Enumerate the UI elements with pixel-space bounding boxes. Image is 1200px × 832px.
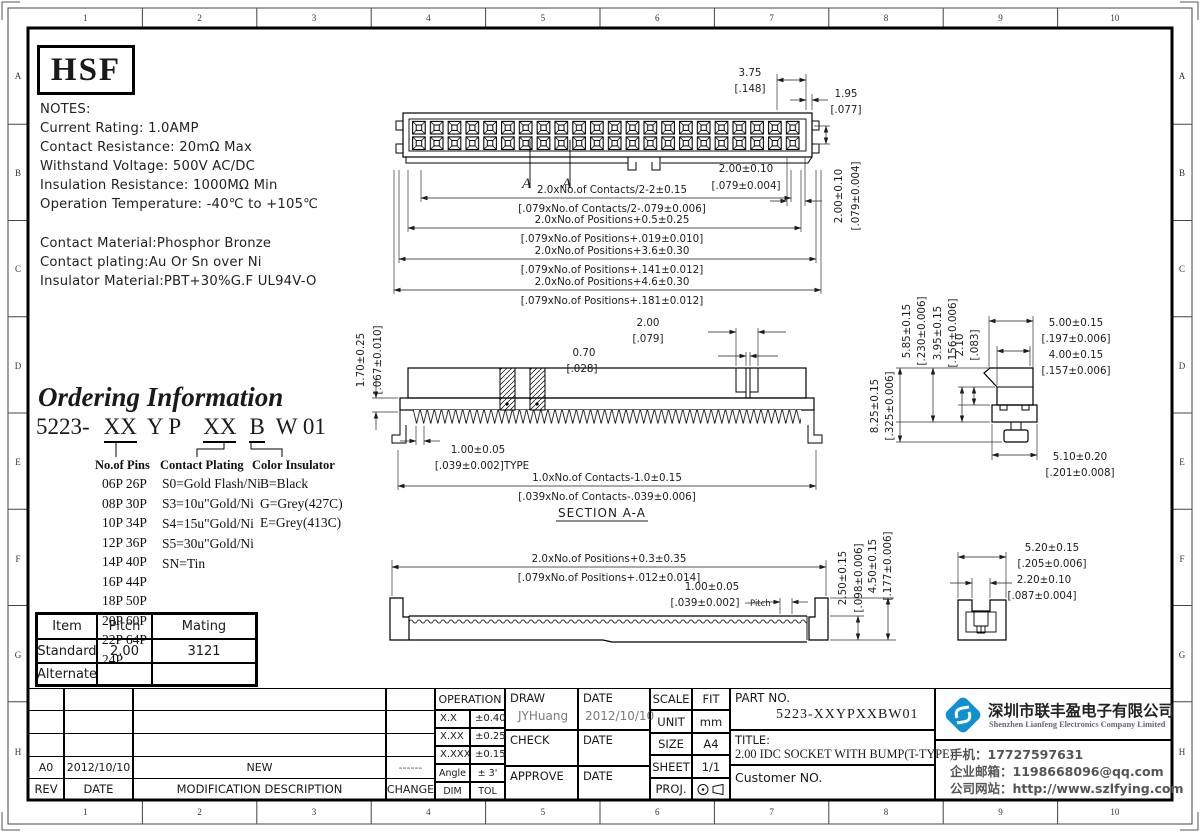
dim-5-85-in: [.230±0.006]	[916, 296, 928, 365]
ruler-row-label: G	[8, 607, 28, 704]
dim-2-00-v-in: [.079±0.004]	[850, 161, 862, 230]
dim-b-1-00: 1.00±0.05	[685, 581, 739, 593]
dim-chain-3-in: [.079xNo.of Positions+.141±0.012]	[521, 264, 703, 276]
tol-row3-label: X.XXX	[440, 749, 471, 760]
ruler-row-label: A	[8, 28, 28, 125]
dim-1-00-type-in: [.039±0.002]TYPE	[435, 460, 529, 472]
dim-chain-2: 2.0xNo.of Positions+0.5±0.25	[535, 214, 690, 226]
rev-date-value: 2012/10/10	[64, 756, 133, 778]
title-block: A0 2012/10/10 NEW ------ REV DATE MODIFI…	[28, 688, 1172, 800]
ruler-row-label: C	[8, 221, 28, 318]
pins-option: 06P 26P	[102, 474, 147, 494]
notes-material-lines: Contact Material:Phosphor BronzeContact …	[40, 234, 370, 291]
ruler-col-label: 1	[28, 8, 142, 28]
dim-8-25: 8.25±0.15	[869, 379, 881, 433]
approve-date-label: DATE	[583, 769, 613, 783]
ruler-row-label: B	[8, 125, 28, 222]
rev-desc-header: MODIFICATION DESCRIPTION	[133, 778, 386, 800]
ruler-top: 12345678910	[28, 8, 1172, 28]
size-label: SIZE	[650, 733, 692, 755]
dim-b-1-00-in: [.039±0.002]	[670, 597, 739, 609]
plating-option: S4=15u"Gold/Ni	[162, 514, 261, 534]
dim-chain-3: 2.0xNo.of Positions+3.6±0.30	[535, 245, 690, 257]
code-plating: XX	[203, 414, 236, 443]
mating-alt-mating	[152, 663, 256, 685]
section-marker-a1: A	[521, 176, 532, 192]
operation-header: OPERATION	[435, 688, 505, 710]
mating-std-item: Standard	[37, 639, 97, 663]
rev-header: REV	[28, 778, 64, 800]
dim-2-50-in: [.098±0.006]	[853, 543, 865, 612]
plating-option: S3=10u"Gold/Ni	[162, 494, 261, 514]
tol-row2-value: ±0.25	[475, 731, 506, 742]
check-date-label: DATE	[583, 733, 613, 747]
ruler-col-label: 8	[829, 8, 943, 28]
ruler-row-label: A	[1172, 28, 1192, 125]
top-view	[396, 113, 819, 188]
title-label: TITLE:	[735, 733, 770, 747]
ruler-row-label: B	[1172, 125, 1192, 222]
part-no-value: 5223-XXYPXXBW01	[776, 707, 919, 723]
note-line: Contact plating:Au Or Sn over Ni	[40, 253, 370, 272]
title-value: 2.00 IDC SOCKET WITH BUMP(T-TYPE)	[735, 747, 954, 762]
note-line: Insulator Material:PBT+30%G.F UL94V-O	[40, 272, 370, 291]
color-option: B=Black	[260, 474, 343, 494]
dim-3-75-in: [.148]	[735, 83, 766, 95]
plating-option: S5=30u"Gold/Ni	[162, 534, 261, 554]
note-line: Withstand Voltage: 500V AC/DC	[40, 157, 370, 176]
company-website: 公司网站：http://www.szlfying.com	[950, 780, 1184, 797]
pins-option: 18P 50P	[102, 591, 147, 611]
projection-symbol-icon	[696, 783, 726, 796]
ruler-col-label: 8	[829, 802, 943, 822]
code-color: B	[249, 414, 264, 443]
notes-block: NOTES: Current Rating: 1.0AMPContact Res…	[40, 100, 370, 291]
ruler-row-label: H	[8, 704, 28, 801]
mating-std-mating: 3121	[152, 639, 256, 663]
end-view-dims	[950, 552, 1012, 598]
rev-date-header: DATE	[64, 778, 133, 800]
part-no-label: PART NO.	[735, 691, 790, 705]
mating-alt-pitch	[97, 663, 152, 685]
hsf-logo-text: HSF	[51, 52, 121, 89]
draw-date-value: 2012/10/10	[585, 709, 654, 723]
sheet-label: SHEET	[650, 755, 692, 778]
dim-3-95: 3.95±0.15	[932, 306, 944, 360]
mating-table: Item Pitch Mating Standard 2.00 3121 Alt…	[35, 612, 258, 687]
pins-option: 12P 36P	[102, 533, 147, 553]
dim-5-00: 5.00±0.15	[1049, 317, 1103, 329]
note-line: Operation Temperature: -40℃ to +105℃	[40, 195, 370, 214]
dim-1-00-type: 1.00±0.05	[451, 444, 505, 456]
ruler-col-label: 3	[257, 802, 371, 822]
hsf-logo: HSF	[37, 45, 135, 95]
sheet-value: 1/1	[692, 755, 730, 778]
dim-5-10: 5.10±0.20	[1053, 451, 1107, 463]
notes-title: NOTES:	[40, 100, 370, 119]
note-line: Contact Resistance: 20mΩ Max	[40, 138, 370, 157]
dim-5-20: 5.20±0.15	[1025, 542, 1079, 554]
ordering-title: Ordering Information	[38, 382, 283, 413]
dim-4-50-in: [.177±0.006]	[882, 531, 894, 600]
ruler-left: ABCDEFGH	[8, 28, 28, 800]
ruler-col-label: 6	[600, 8, 714, 28]
ruler-row-label: F	[8, 511, 28, 608]
size-value: A4	[692, 733, 730, 755]
company-phone: 手机：17727597631	[950, 746, 1083, 763]
note-line: Current Rating: 1.0AMP	[40, 119, 370, 138]
ruler-col-label: 9	[943, 8, 1057, 28]
dim-chain-1: 2.0xNo.of Contacts/2-2±0.15	[537, 184, 687, 196]
pins-option: 14P 40P	[102, 552, 147, 572]
ruler-col-label: 6	[600, 802, 714, 822]
ruler-row-label: E	[8, 414, 28, 511]
dim-2-10-in: [.083]	[969, 330, 981, 361]
dim-1-95: 1.95	[835, 88, 858, 100]
ruler-col-label: 4	[371, 802, 485, 822]
ruler-col-label: 1	[28, 802, 142, 822]
dim-1-70-in: [.067±0.010]	[372, 325, 384, 394]
unit-label: UNIT	[650, 710, 692, 733]
notes-lines: Current Rating: 1.0AMPContact Resistance…	[40, 119, 370, 214]
ruler-col-label: 7	[714, 8, 828, 28]
ordering-code: 5223-XXY PXXBW 01	[36, 414, 326, 443]
draw-label: DRAW	[510, 691, 545, 705]
pins-option: 10P 34P	[102, 513, 147, 533]
tol-row1-label: X.X	[440, 713, 457, 724]
ruler-row-label: C	[1172, 221, 1192, 318]
dim-chain-4-in: [.079xNo.of Positions+.181±0.012]	[521, 295, 703, 307]
plating-option: S0=Gold Flash/Ni	[162, 474, 261, 494]
color-option: E=Grey(413C)	[260, 513, 343, 533]
rev-change-value: ------	[386, 756, 435, 778]
dim-4-50: 4.50±0.15	[867, 539, 879, 593]
code-mid: Y P	[147, 414, 181, 440]
section-label: SECTION A-A	[558, 506, 646, 520]
dim-b-chain: 2.0xNo.of Positions+0.3±0.35	[532, 553, 687, 565]
dim-5-85: 5.85±0.15	[901, 304, 913, 358]
dim-sec-chain-in: [.039xNo.of Contacts-.039±0.006]	[518, 491, 696, 503]
dim-4-00: 4.00±0.15	[1049, 349, 1103, 361]
mating-header-mating: Mating	[152, 614, 256, 639]
color-option: G=Grey(427C)	[260, 494, 343, 514]
ruler-col-label: 4	[371, 8, 485, 28]
check-label: CHECK	[510, 733, 550, 747]
ruler-col-label: 5	[486, 8, 600, 28]
note-line: Insulation Resistance: 1000MΩ Min	[40, 176, 370, 195]
dim-5-00-in: [.197±0.006]	[1041, 333, 1110, 345]
mating-std-pitch: 2.00	[97, 639, 152, 663]
dim-3-75: 3.75	[739, 67, 762, 79]
section-view	[392, 368, 822, 443]
scale-value: FIT	[692, 688, 730, 710]
customer-no-label: Customer NO.	[735, 770, 822, 785]
pins-option: 08P 30P	[102, 494, 147, 514]
dim-sec-chain: 1.0xNo.of Contacts-1.0±0.15	[532, 472, 682, 484]
code-prefix: 5223-	[36, 414, 90, 440]
dim-chain-2-in: [.079xNo.of Positions+.019±0.010]	[521, 233, 703, 245]
rev-desc-value: NEW	[133, 756, 386, 778]
plating-list: S0=Gold Flash/NiS3=10u"Gold/NiS4=15u"Gol…	[162, 474, 261, 574]
color-header: Color Insulator	[252, 458, 335, 473]
plating-option: SN=Tin	[162, 554, 261, 574]
ruler-row-label: D	[1172, 318, 1192, 415]
dim-2-00-h: 2.00±0.10	[719, 163, 773, 175]
tol-tol-label: TOL	[470, 782, 505, 800]
code-suffix: W 01	[276, 414, 326, 440]
ruler-row-label: F	[1172, 511, 1192, 608]
dim-1-70: 1.70±0.25	[355, 333, 367, 387]
dim-2-20: 2.20±0.10	[1017, 574, 1071, 586]
dim-4-00-in: [.157±0.006]	[1041, 365, 1110, 377]
tol-row3-value: ±0.15	[475, 749, 506, 760]
dim-b-chain-in: [.079xNo.of Positions+.012±0.014]	[518, 572, 700, 584]
dim-2-00-h-in: [.079±0.004]	[711, 180, 780, 192]
pins-header: No.of Pins	[95, 458, 150, 473]
rev-change-header: CHANGE	[386, 778, 435, 800]
dim-5-20-in: [.205±0.006]	[1017, 558, 1086, 570]
tol-angle-label: Angle	[435, 764, 470, 782]
code-pins: XX	[104, 414, 137, 443]
ruler-col-label: 10	[1058, 8, 1172, 28]
ruler-bottom: 12345678910	[28, 802, 1172, 822]
proj-label: PROJ.	[650, 778, 692, 800]
ruler-row-label: G	[1172, 607, 1192, 704]
ruler-col-label: 10	[1058, 802, 1172, 822]
tol-row2-label: X.XX	[440, 731, 464, 742]
ruler-col-label: 2	[142, 8, 256, 28]
ruler-col-label: 3	[257, 8, 371, 28]
ruler-right: ABCDEFGH	[1172, 28, 1192, 800]
dim-2-00-slot-in: [.079]	[633, 333, 664, 345]
draw-date-label: DATE	[583, 691, 613, 705]
color-list: B=BlackG=Grey(427C)E=Grey(413C)	[260, 474, 343, 533]
ruler-col-label: 5	[486, 802, 600, 822]
dim-2-20-in: [.087±0.004]	[1007, 590, 1076, 602]
pins-option: 16P 44P	[102, 572, 147, 592]
company-email: 企业邮箱：1198668096@qq.com	[950, 763, 1164, 780]
dim-1-95-in: [.077]	[831, 104, 862, 116]
mating-header-pitch: Pitch	[97, 614, 152, 639]
dim-5-10-in: [.201±0.008]	[1045, 467, 1114, 479]
ordering-connectors	[116, 442, 282, 457]
dim-2-00-slot: 2.00	[637, 317, 660, 329]
rev-value: A0	[28, 756, 64, 778]
drawing-sheet: 3.75 [.148] 1.95 [.077] 2.00±0.10 [.079±…	[0, 0, 1200, 832]
company-name-en: Shenzhen Lianfeng Electronics Company Li…	[989, 720, 1165, 729]
mating-header-item: Item	[37, 614, 97, 639]
dim-2-00-v: 2.00±0.10	[833, 169, 845, 223]
plating-header: Contact Plating	[160, 458, 244, 473]
note-line: Contact Material:Phosphor Bronze	[40, 234, 370, 253]
dim-0-70: 0.70	[573, 347, 596, 359]
end-view	[958, 600, 1006, 640]
dim-2-50: 2.50±0.15	[837, 551, 849, 605]
dim-0-70-in: [.028]	[567, 363, 598, 375]
ruler-col-label: 7	[714, 802, 828, 822]
draw-value: JYHuang	[518, 709, 568, 723]
ruler-col-label: 9	[943, 802, 1057, 822]
ruler-row-label: E	[1172, 414, 1192, 511]
tol-angle-value: ± 3'	[470, 764, 505, 782]
tol-dim-label: DIM	[435, 782, 470, 800]
company-logo-icon	[942, 694, 984, 736]
dim-pitch-label: Pitch	[750, 599, 771, 609]
dim-8-25-in: [.325±0.006]	[884, 371, 896, 440]
unit-value: mm	[692, 710, 730, 733]
tol-row1-value: ±0.40	[475, 713, 506, 724]
scale-label: SCALE	[650, 688, 692, 710]
company-name-cn: 深圳市联丰盈电子有限公司	[988, 699, 1174, 721]
approve-label: APPROVE	[510, 769, 564, 783]
dim-chain-4: 2.0xNo.of Positions+4.6±0.30	[535, 276, 690, 288]
dim-2-10: 2.10	[954, 334, 966, 357]
ruler-row-label: D	[8, 318, 28, 415]
ruler-col-label: 2	[142, 802, 256, 822]
mating-alt-item: Alternate	[37, 663, 97, 685]
